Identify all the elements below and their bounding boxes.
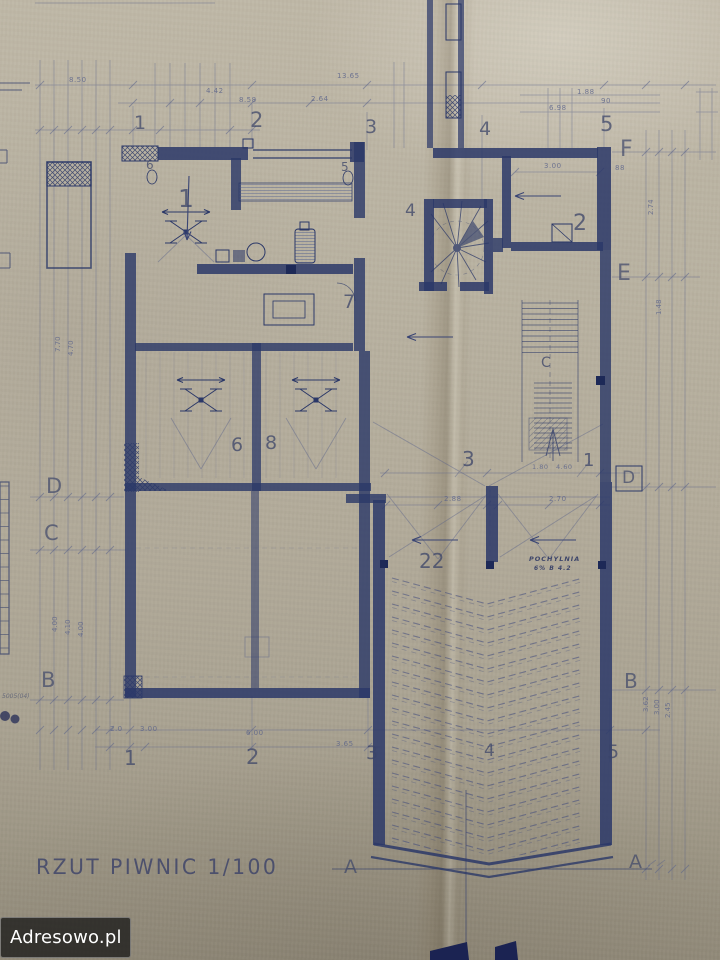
dimv-300-c: 3.00 — [654, 699, 661, 715]
pencil-construction-lines — [158, 235, 665, 866]
grid-col-1-bottom: 1 — [124, 748, 137, 768]
dim-698: 6.98 — [549, 105, 567, 112]
room-6: 6 — [231, 436, 243, 455]
dimv-770: 7.70 — [55, 336, 62, 352]
room-2: 2 — [573, 213, 587, 235]
section-a-left: A — [344, 858, 357, 877]
grid-col-2-bottom: 2 — [246, 747, 259, 768]
left-margin-elements — [0, 83, 30, 724]
grid-row-b-right: B — [624, 671, 638, 691]
room-3-ramp: 3 — [462, 449, 475, 469]
door-number-5: 5 — [341, 161, 349, 173]
grid-row-f-right: F — [620, 139, 633, 161]
room-22-ramp: 22 — [419, 551, 444, 571]
dimv-410: 4.10 — [65, 619, 72, 635]
grid-col-4-bottom: 4 — [484, 743, 495, 760]
grid-row-d-right: D — [622, 470, 635, 487]
ramp-name: POCHYLNIA — [529, 556, 580, 563]
grid-col-3-top: 3 — [365, 118, 377, 137]
watermark-badge: Adresowo.pl — [0, 917, 131, 958]
watermark-text: Adresowo.pl — [10, 927, 122, 948]
walls-layer — [47, 0, 652, 948]
dim-460: 4.60 — [556, 464, 572, 471]
dim-20: 2.0 — [110, 726, 123, 733]
dim-180: 1.80 — [532, 464, 548, 471]
grid-col-5-bottom: 5 — [607, 743, 619, 762]
grid-col-4-top: 4 — [479, 120, 491, 139]
room-1: 1 — [178, 186, 194, 211]
dim-288: 2.88 — [444, 496, 462, 503]
blueprint-drawing — [0, 0, 720, 960]
dimv-400-a: 4.00 — [52, 616, 59, 632]
dim-188: 1.88 — [577, 89, 595, 96]
dim-600: 6.00 — [246, 730, 264, 737]
room-8: 8 — [265, 434, 277, 453]
stair-c — [522, 300, 578, 462]
stair-label-c: C — [541, 356, 551, 370]
dim-90: 90 — [601, 98, 611, 105]
dimv-245: 2.45 — [665, 702, 672, 718]
grid-col-2-top: 2 — [250, 110, 263, 131]
dimv-362: 3.62 — [643, 696, 650, 712]
dimv-400-b: 4.00 — [78, 621, 85, 637]
dimv-148: 1.48 — [656, 299, 663, 315]
grid-col-5-top: 5 — [600, 114, 613, 135]
dim-300-a: 3.00 — [544, 163, 562, 170]
dimv-470: 4.70 — [68, 340, 75, 356]
dim-264: 2.64 — [311, 96, 329, 103]
room-1-ramp: 1 — [583, 452, 594, 470]
dim-270: 2.70 — [549, 496, 567, 503]
grid-col-3-bottom: 3 — [366, 744, 378, 763]
dim-365: 3.65 — [336, 741, 354, 748]
ramp-slope-note: 6% B 4.2 — [534, 566, 572, 572]
room-7: 7 — [343, 293, 355, 312]
dim-858: 8.58 — [239, 97, 257, 104]
spiral-stair — [430, 201, 489, 287]
dim-850: 8.50 — [69, 77, 87, 84]
dim-88: 88 — [615, 165, 625, 172]
plan-title: RZUT PIWNIC 1/100 — [36, 855, 278, 879]
door-number-6: 6 — [146, 159, 154, 171]
dim-1365: 13.65 — [337, 73, 360, 80]
ramp-chevron-hatch — [392, 578, 583, 868]
grid-col-1-top: 1 — [134, 114, 146, 133]
grid-row-e-right: E — [617, 263, 631, 285]
bottom-ink-marks — [430, 941, 518, 960]
section-a-right: A — [629, 853, 642, 872]
blueprint-photo: 1234512345DCBFEDBAA1247683122C65POCHYLNI… — [0, 0, 720, 960]
dimv-274: 2.74 — [648, 199, 655, 215]
room-4: 4 — [405, 203, 416, 220]
grid-row-b-left: B — [41, 670, 55, 691]
dim-300-b: 3.00 — [140, 726, 158, 733]
grid-row-d-left: D — [46, 476, 62, 497]
grid-row-c-left: C — [44, 523, 59, 544]
floor-hatch-stripes — [146, 352, 336, 478]
dim-442: 4.42 — [206, 88, 224, 95]
margin-annotation: 5005(04) — [2, 694, 30, 700]
